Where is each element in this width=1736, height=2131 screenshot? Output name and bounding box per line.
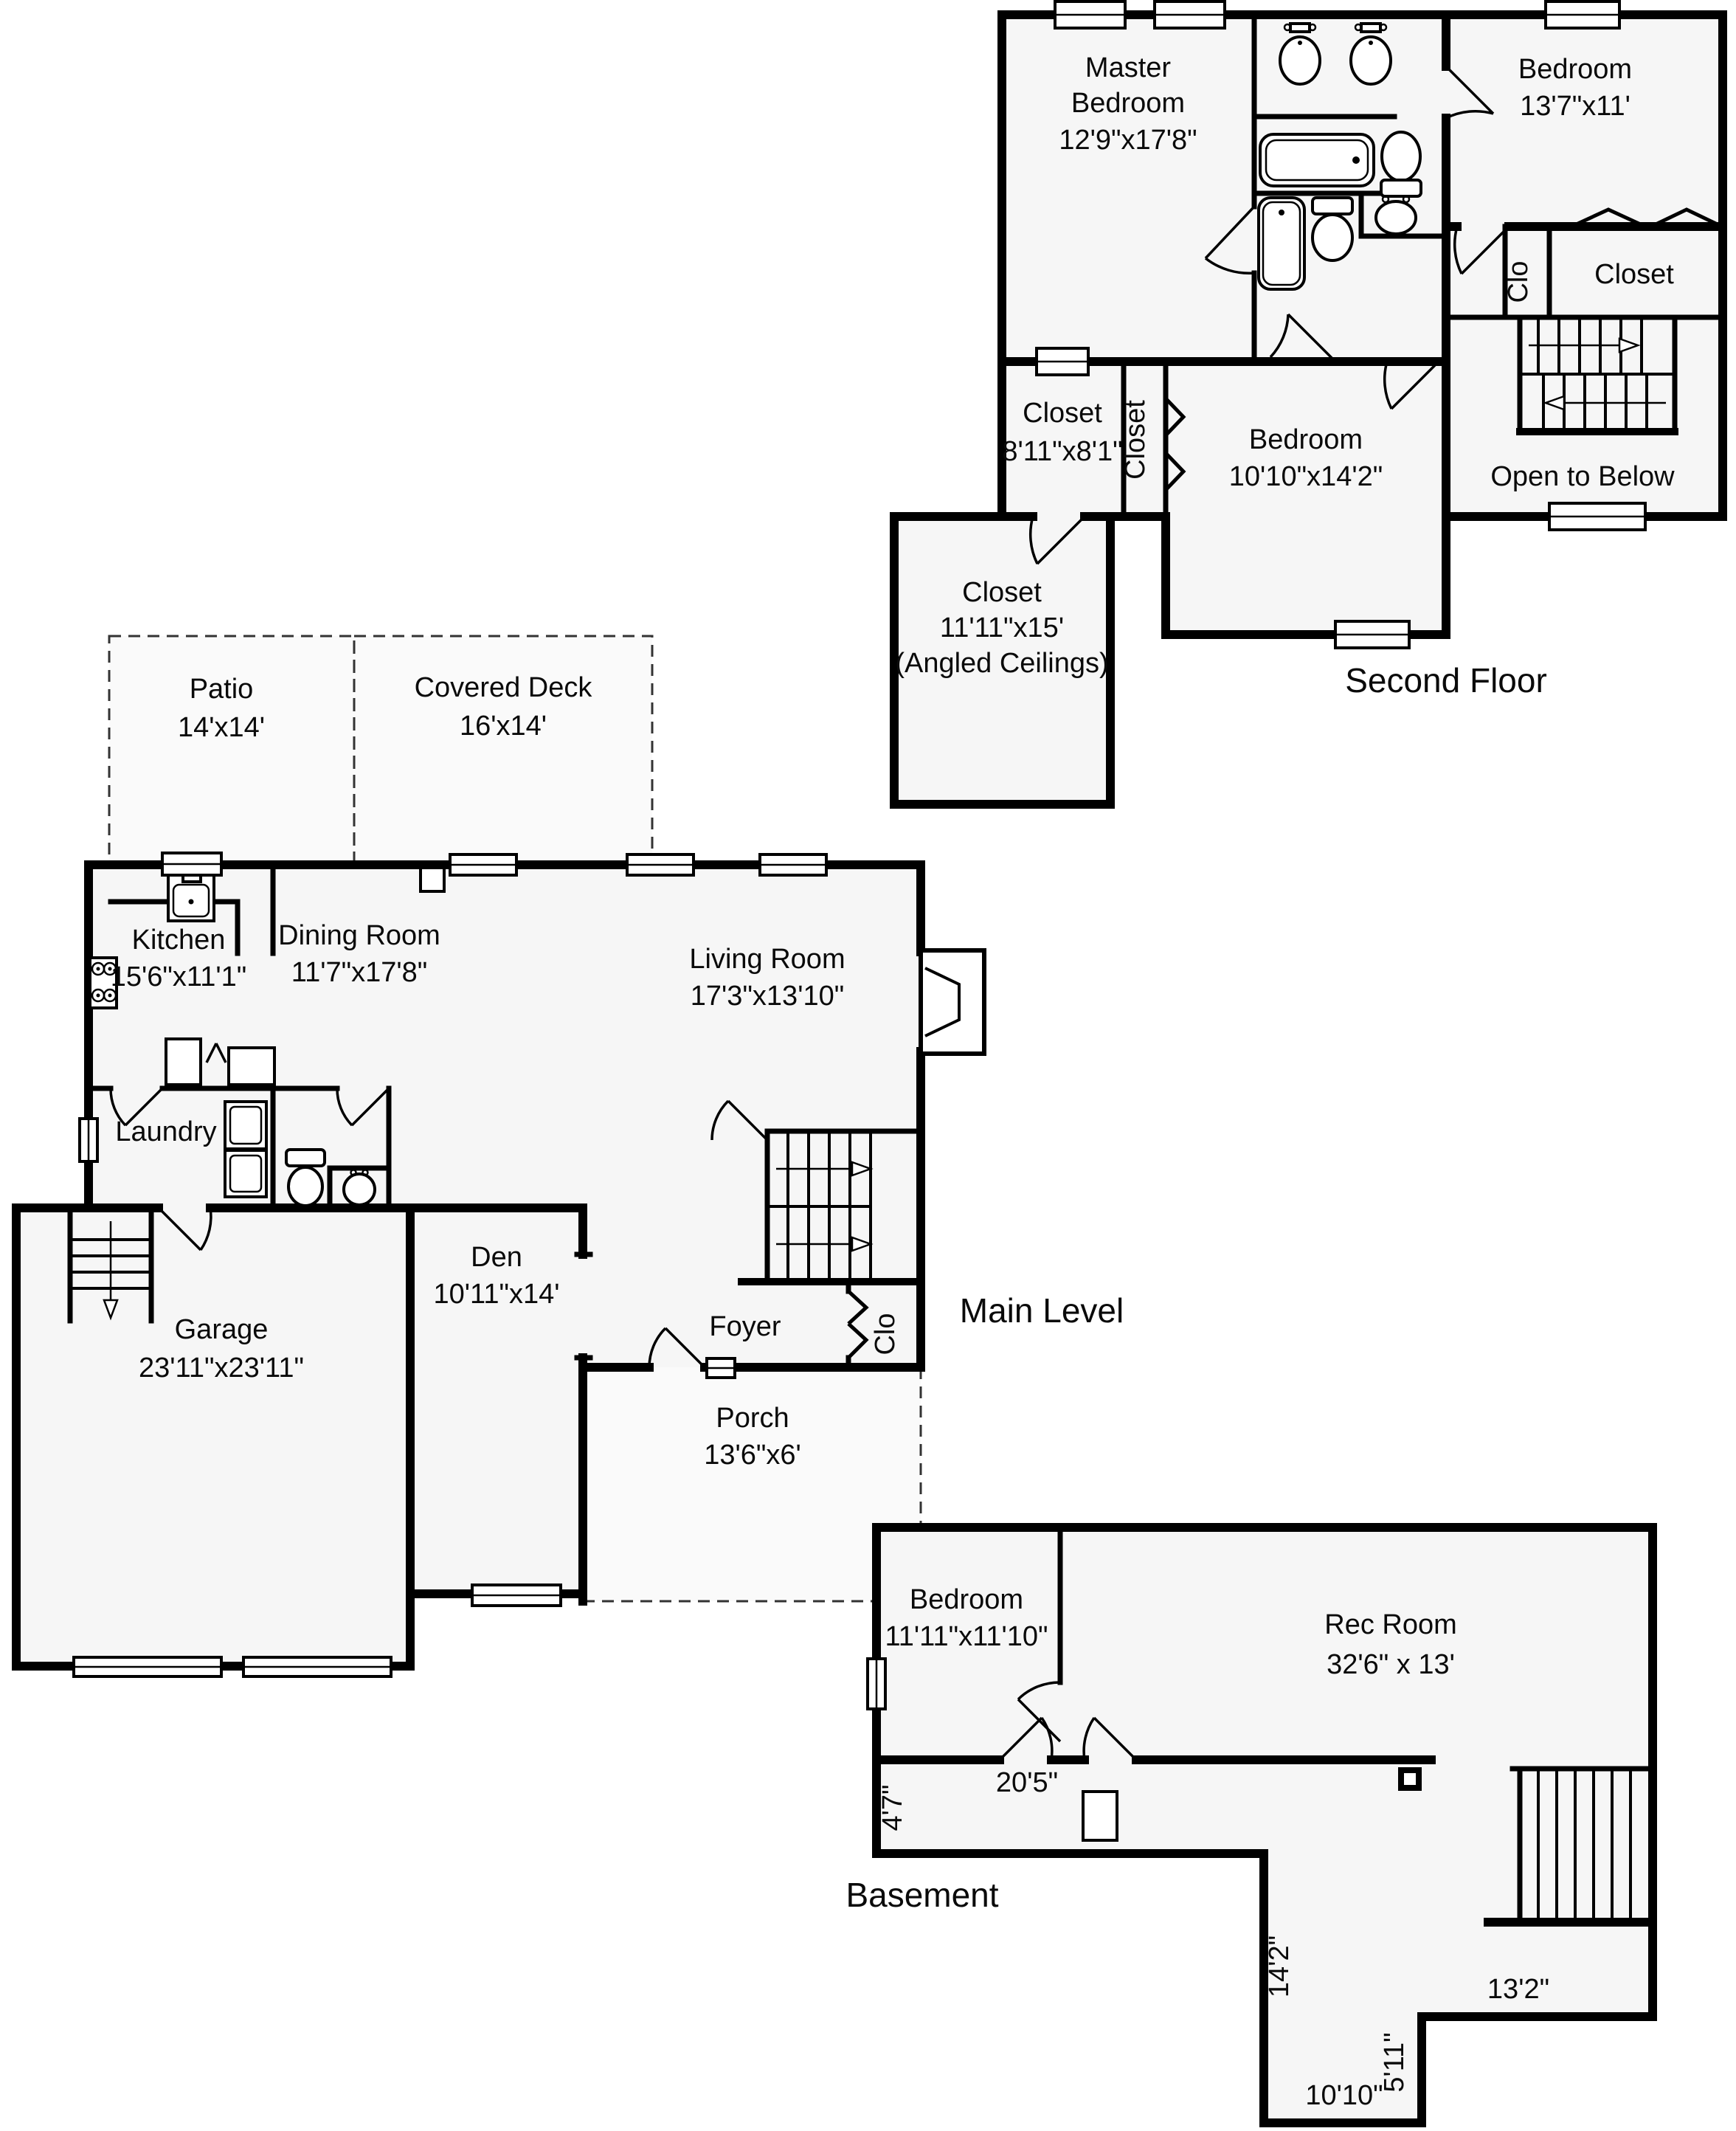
porch-label: Porch (716, 1403, 789, 1434)
dim-5-11: 5'11" (1379, 2032, 1410, 2092)
closet-mid-label: Closet (1023, 398, 1102, 429)
master-bedroom-dims: 12'9"x17'8" (1059, 125, 1197, 156)
basement-title: Basement (845, 1876, 998, 1914)
patio-dims: 14'x14' (178, 712, 265, 743)
garage-label: Garage (175, 1314, 269, 1345)
clo-label: Clo (870, 1313, 901, 1355)
cabinet-icon (229, 1048, 274, 1085)
utility-box (1083, 1792, 1117, 1840)
porch-dims: 13'6"x6' (704, 1440, 801, 1471)
bedroom-middle-dims: 10'10"x14'2" (1229, 461, 1383, 492)
dim-14-2: 14'2" (1264, 1935, 1295, 1997)
dining-room-dims: 11'7"x17'8" (291, 957, 427, 988)
closet-right-label: Closet (1594, 259, 1674, 290)
covered-deck-area (354, 636, 652, 865)
second-floor-title: Second Floor (1345, 661, 1547, 700)
master-bedroom-label: Master (1085, 52, 1171, 83)
dim-4-7: 4'7" (877, 1784, 908, 1831)
closet-angled-dims: 11'11"x15' (940, 612, 1064, 643)
foyer-label: Foyer (709, 1311, 781, 1342)
basement-plan: Bedroom 11'11"x11'10" Rec Room 32'6" x 1… (845, 1527, 1653, 2123)
floor-plan-svg: Master Bedroom 12'9"x17'8" Bedroom 13'7"… (0, 0, 1736, 2131)
bedroom-middle-fill (1166, 362, 1446, 635)
patio-area (109, 636, 354, 865)
open-to-below-label: Open to Below (1490, 461, 1675, 492)
basement-bedroom-dims: 11'11"x11'10" (885, 1621, 1048, 1652)
kitchen-label: Kitchen (132, 925, 226, 956)
second-floor-plan: Master Bedroom 12'9"x17'8" Bedroom 13'7"… (894, 1, 1723, 804)
patio-label: Patio (190, 674, 254, 705)
bay-window (921, 950, 984, 1054)
garage-door (74, 1657, 221, 1676)
floor-plan-canvas: Master Bedroom 12'9"x17'8" Bedroom 13'7"… (0, 0, 1736, 2131)
rec-room-dims: 32'6" x 13' (1327, 1649, 1455, 1680)
support-post-icon (1398, 1767, 1422, 1791)
closet-mid-dims: 8'11"x8'1" (1002, 436, 1122, 467)
closet-strip-label: Closet (1120, 400, 1151, 480)
bathtub-icon (1260, 134, 1374, 186)
toilet-icon (1313, 198, 1352, 260)
closet-angled-label: Closet (962, 577, 1042, 608)
den-dims: 10'11"x14' (434, 1279, 560, 1310)
garage-dims: 23'11"x23'11" (139, 1353, 304, 1384)
toilet-icon (286, 1150, 325, 1206)
bedroom-middle-label: Bedroom (1249, 424, 1363, 455)
den-label: Den (471, 1242, 522, 1273)
dim-20-5: 20'5" (996, 1767, 1058, 1798)
clo-label: Clo (1503, 260, 1534, 303)
master-bedroom-label2: Bedroom (1071, 88, 1185, 119)
toilet-icon (1381, 132, 1421, 196)
dim-10-10: 10'10" (1305, 2080, 1383, 2111)
covered-deck-dims: 16'x14' (460, 711, 547, 742)
laundry-label: Laundry (115, 1116, 216, 1147)
garage-fill (16, 1208, 410, 1666)
covered-deck-label: Covered Deck (415, 672, 593, 703)
basement-bedroom-label: Bedroom (910, 1584, 1023, 1615)
bedroom-right-dims: 13'7"x11' (1520, 91, 1630, 122)
living-room-dims: 17'3"x13'10" (691, 981, 844, 1012)
kitchen-dims: 15'6"x11'1" (111, 961, 246, 992)
bathtub-icon (1259, 198, 1304, 289)
refrigerator-icon (166, 1039, 201, 1085)
garage-door (243, 1657, 391, 1676)
washer-dryer-icon (225, 1102, 266, 1197)
living-room-label: Living Room (689, 944, 845, 975)
kitchen-sink-icon (168, 875, 214, 921)
rec-room-label: Rec Room (1324, 1609, 1457, 1640)
bedroom-right-label: Bedroom (1518, 54, 1632, 85)
main-level-title: Main Level (960, 1291, 1124, 1330)
dim-13-2: 13'2" (1487, 1974, 1549, 2005)
dining-room-label: Dining Room (278, 920, 440, 951)
closet-angled-note: (Angled Ceilings) (895, 648, 1108, 679)
chimney-box (421, 868, 444, 891)
